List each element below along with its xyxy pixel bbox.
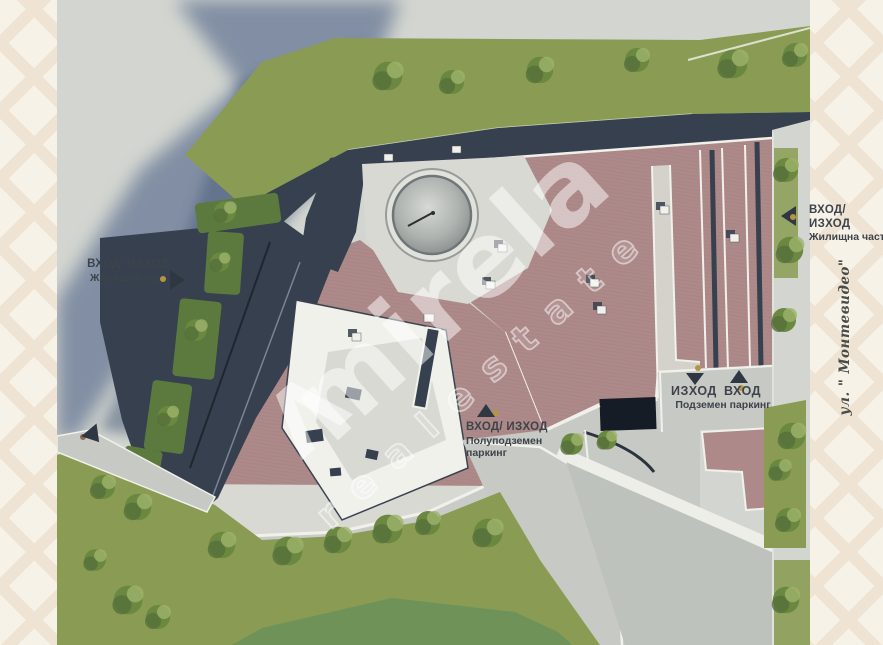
- entrance-dot-icon: [160, 276, 166, 282]
- glass-dome: [393, 176, 471, 254]
- label-text: ВХОД/ ИЗХОД: [466, 421, 576, 435]
- exit-dot-icon: [695, 365, 701, 371]
- exit-label: ИЗХОД: [671, 384, 717, 398]
- arrow-up-icon: [477, 404, 495, 417]
- label-text: Жилищна част: [809, 231, 883, 243]
- aerial-render: [0, 0, 883, 645]
- label-text: ВХОД/ ИЗХОД: [809, 204, 883, 231]
- label-text: ВХОД/ ИЗХОД: [78, 258, 178, 272]
- arrow-right-icon: [170, 270, 185, 290]
- entrance-dot-icon: [493, 410, 499, 416]
- label-text: паркинг: [466, 447, 576, 459]
- caption-label: Подземен паркинг: [668, 399, 778, 411]
- ramp-tunnel: [599, 397, 656, 431]
- label-entrance-residential-right: ВХОД/ ИЗХОД Жилищна част: [809, 204, 883, 244]
- entrance-dot-icon: [790, 214, 796, 220]
- street-name-label: ул. " Монтевидео": [837, 252, 853, 422]
- arrow-up-icon: [730, 370, 748, 383]
- label-text: Полуподземен: [466, 435, 576, 447]
- label-entrance-semi-underground-parking: ВХОД/ ИЗХОД Полуподземен паркинг: [466, 421, 576, 459]
- site-plan-rendering: mirela realestate Λ ВХОД/ ИЗХОД Жилищна …: [0, 0, 883, 645]
- entrance-label: ВХОД: [724, 384, 761, 398]
